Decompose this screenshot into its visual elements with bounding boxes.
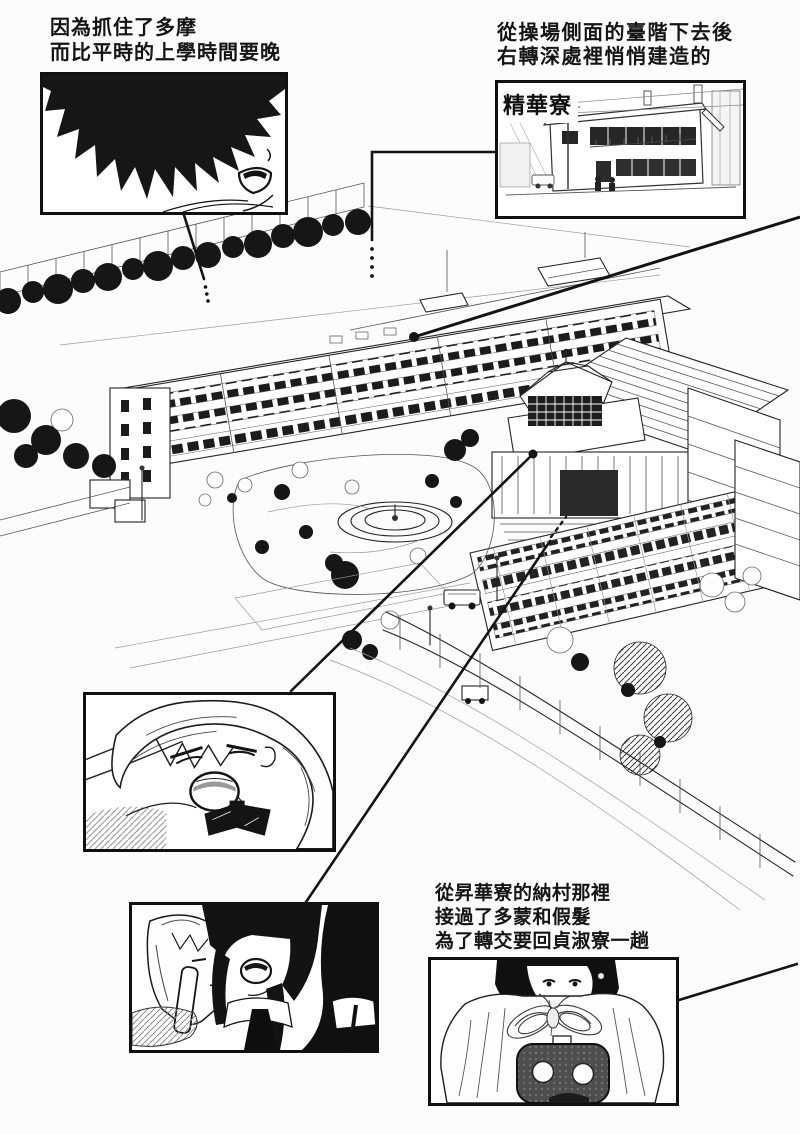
courtyard-garden [233, 429, 494, 594]
panel-two-girls [129, 902, 379, 1053]
wig-art [431, 960, 676, 1103]
panel-blonde-girl [83, 692, 336, 852]
caption-bottom-right: 從昇華寮的納村那裡 接過了多蒙和假髮 為了轉交要回貞淑寮一趟 [435, 882, 650, 954]
caption-top-left: 因為抓住了多摩 而比平時的上學時間要晚 [50, 16, 281, 66]
panel-boy-closeup [40, 72, 288, 215]
manga-page: 因為抓住了多摩 而比平時的上學時間要晚 從操場側面的臺階下去後 右轉深處裡悄悄建… [0, 0, 800, 1134]
leader-line-dorm [370, 152, 495, 278]
roads [115, 556, 500, 705]
blonde-art [86, 695, 333, 849]
base-bushes [199, 472, 252, 506]
dorm-sign-label: 精華寮 [499, 87, 578, 123]
leader-line-wig [679, 964, 797, 1000]
panel-seika-dorm: 精華寮 [495, 80, 746, 219]
panel-wig-domon [428, 957, 679, 1106]
duo-art [132, 905, 376, 1050]
boy-art [43, 75, 285, 212]
caption-top-right: 從操場側面的臺階下去後 右轉深處裡悄悄建造的 [497, 21, 734, 69]
